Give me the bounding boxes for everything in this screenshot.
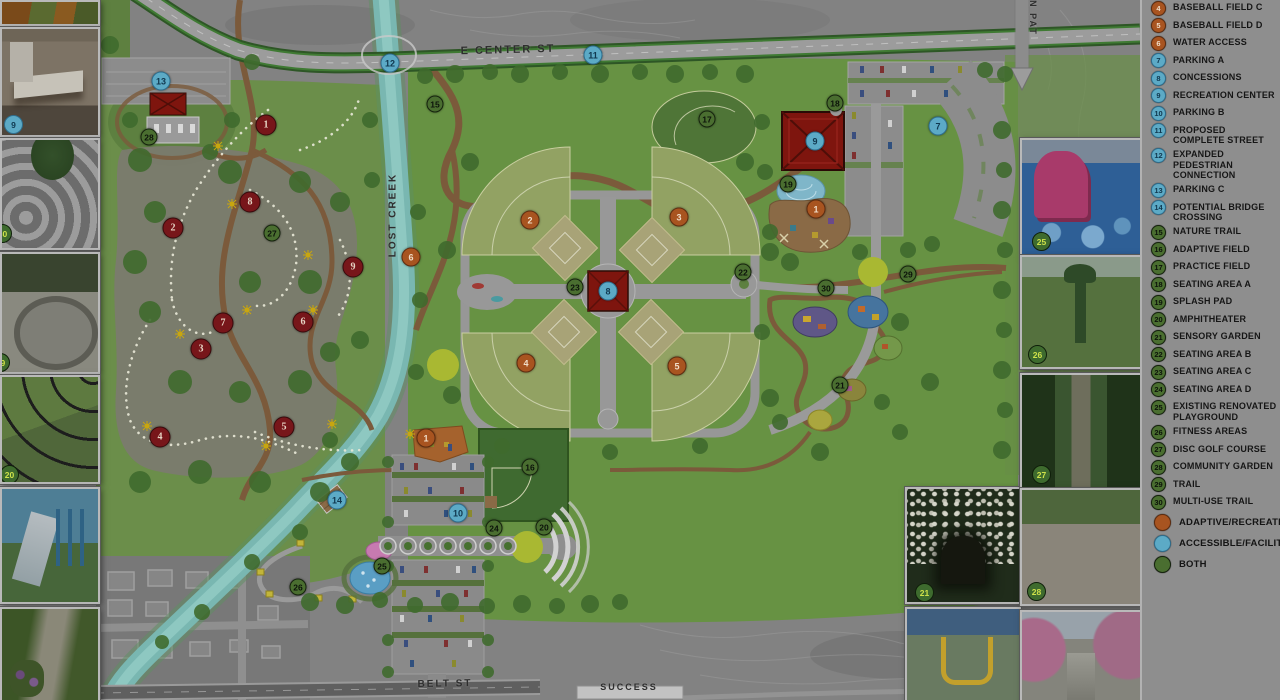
- legend-item-number: 10: [1151, 106, 1166, 121]
- disc-golf-hole-marker-7: 7: [213, 313, 234, 334]
- park-master-plan: E CENTER STLOST CREEKN PATBELT STSUCCESS…: [0, 0, 1280, 700]
- photo-adaptive-swing: [905, 607, 1021, 700]
- legend-item-label: PARKING B: [1173, 106, 1225, 118]
- map-marker-1: 1: [417, 429, 436, 448]
- legend-item-label: ADAPTIVE FIELD: [1173, 242, 1250, 254]
- map-marker-22: 22: [735, 264, 752, 281]
- legend-item-number: 11: [1151, 123, 1166, 138]
- legend-item-number: 16: [1151, 242, 1166, 257]
- legend-item-number: 8: [1151, 71, 1166, 86]
- photo-badge-28: 28: [1027, 582, 1046, 601]
- map-marker-29: 29: [900, 266, 917, 283]
- legend-item-label: SENSORY GARDEN: [1173, 330, 1261, 342]
- legend-item-19: 19SPLASH PAD: [1151, 295, 1278, 310]
- map-marker-17: 17: [699, 111, 716, 128]
- map-marker-10: 10: [449, 504, 468, 523]
- photo-badge-27: 27: [1032, 465, 1051, 484]
- legend-key-label: ACCESSIBLE/FACILITY: [1179, 538, 1280, 549]
- legend-item-label: PARKING A: [1173, 53, 1224, 65]
- legend-item-label: POTENTIAL BRIDGE CROSSING: [1173, 200, 1278, 222]
- legend-item-number: 27: [1151, 442, 1166, 457]
- photo-splash-fountain: 19: [0, 252, 100, 374]
- legend-key-label: BOTH: [1179, 559, 1207, 570]
- map-marker-26: 26: [290, 579, 307, 596]
- legend-item-label: DISC GOLF COURSE: [1173, 442, 1266, 454]
- legend-item-21: 21SENSORY GARDEN: [1151, 330, 1278, 345]
- photo-badge-9: 9: [4, 115, 23, 134]
- legend-item-28: 28COMMUNITY GARDEN: [1151, 460, 1278, 475]
- map-marker-2: 2: [521, 211, 540, 230]
- legend-item-label: SEATING AREA B: [1173, 347, 1251, 359]
- legend-list: 3BASEBALL FIELD B4BASEBALL FIELD C5BASEB…: [1151, 0, 1278, 512]
- legend-item-label: RECREATION CENTER: [1173, 88, 1275, 100]
- disc-golf-hole-marker-2: 2: [163, 218, 184, 239]
- legend-key-green: BOTH: [1154, 556, 1278, 573]
- photo-community-garden: 28: [1020, 488, 1142, 606]
- map-marker-24: 24: [486, 520, 503, 537]
- photo-badge-21: 21: [915, 583, 934, 602]
- legend-key-blue: ACCESSIBLE/FACILITY: [1154, 535, 1278, 552]
- legend-item-number: 5: [1151, 18, 1166, 33]
- legend-panel: 3BASEBALL FIELD B4BASEBALL FIELD C5BASEB…: [1140, 0, 1280, 700]
- map-marker-14: 14: [328, 491, 347, 510]
- legend-item-11: 11PROPOSED COMPLETE STREET: [1151, 123, 1278, 145]
- legend-item-label: SEATING AREA C: [1173, 365, 1251, 377]
- legend-item-label: EXISTING RENOVATED PLAYGROUND: [1173, 400, 1278, 422]
- legend-item-22: 22SEATING AREA B: [1151, 347, 1278, 362]
- street-label-success: SUCCESS: [600, 682, 658, 692]
- legend-item-number: 18: [1151, 277, 1166, 292]
- map-marker-3: 3: [670, 208, 689, 227]
- legend-item-26: 26FITNESS AREAS: [1151, 425, 1278, 440]
- legend-item-number: 21: [1151, 330, 1166, 345]
- legend-item-15: 15NATURE TRAIL: [1151, 225, 1278, 240]
- legend-item-number: 23: [1151, 365, 1166, 380]
- legend-item-number: 4: [1151, 1, 1166, 16]
- legend-item-number: 26: [1151, 425, 1166, 440]
- legend-item-number: 15: [1151, 225, 1166, 240]
- green-key-dot: [1154, 556, 1171, 573]
- legend-item-number: 14: [1151, 200, 1166, 215]
- photo-garden-path: [0, 607, 100, 700]
- photo-badge-26: 26: [1028, 345, 1047, 364]
- legend-item-label: BASEBALL FIELD D: [1173, 18, 1263, 30]
- map-marker-1: 1: [807, 200, 826, 219]
- legend-item-number: 13: [1151, 183, 1166, 198]
- map-marker-5: 5: [668, 357, 687, 376]
- legend-item-label: SEATING AREA D: [1173, 382, 1251, 394]
- legend-item-label: WATER ACCESS: [1173, 36, 1247, 48]
- legend-item-number: 30: [1151, 495, 1166, 510]
- street-label-belt-st: BELT ST: [417, 678, 472, 690]
- legend-item-6: 6WATER ACCESS: [1151, 36, 1278, 51]
- legend-item-label: NATURE TRAIL: [1173, 225, 1241, 237]
- street-label-e-center-st: E CENTER ST: [460, 43, 555, 57]
- legend-item-number: 20: [1151, 312, 1166, 327]
- street-label-n-pat: N PAT: [1028, 0, 1038, 36]
- legend-item-number: 28: [1151, 460, 1166, 475]
- legend-item-label: EXPANDED PEDESTRIAN CONNECTION: [1173, 148, 1278, 181]
- legend-item-29: 29TRAIL: [1151, 477, 1278, 492]
- legend-key-orange: ADAPTIVE/RECREATIONAL: [1154, 514, 1278, 531]
- legend-item-label: BASEBALL FIELD C: [1173, 1, 1263, 13]
- map-marker-28: 28: [141, 129, 158, 146]
- legend-item-7: 7PARKING A: [1151, 53, 1278, 68]
- map-marker-11: 11: [584, 46, 603, 65]
- legend-item-14: 14POTENTIAL BRIDGE CROSSING: [1151, 200, 1278, 222]
- legend-item-5: 5BASEBALL FIELD D: [1151, 18, 1278, 33]
- map-marker-9: 9: [806, 132, 825, 151]
- street-label-lost-creek: LOST CREEK: [388, 173, 399, 257]
- photo-playground-closeup: [0, 0, 100, 26]
- legend-item-number: 9: [1151, 88, 1166, 103]
- legend-item-label: CONCESSIONS: [1173, 71, 1242, 83]
- legend-item-number: 19: [1151, 295, 1166, 310]
- legend-item-number: 6: [1151, 36, 1166, 51]
- map-marker-12: 12: [381, 54, 400, 73]
- legend-item-4: 4BASEBALL FIELD C: [1151, 1, 1278, 16]
- legend-item-10: 10PARKING B: [1151, 106, 1278, 121]
- photo-disc-golf: 27: [1020, 373, 1142, 489]
- legend-item-23: 23SEATING AREA C: [1151, 365, 1278, 380]
- legend-item-24: 24SEATING AREA D: [1151, 382, 1278, 397]
- legend-item-20: 20AMPHITHEATER: [1151, 312, 1278, 327]
- photo-sensory-garden-arbor: 21: [905, 487, 1021, 604]
- legend-item-label: SEATING AREA A: [1173, 277, 1251, 289]
- photo-badge-30: 30: [0, 224, 12, 243]
- legend-item-label: SPLASH PAD: [1173, 295, 1232, 307]
- legend-item-30: 30MULTI-USE TRAIL: [1151, 495, 1278, 510]
- photo-playground-slide: [0, 487, 100, 604]
- map-marker-19: 19: [780, 176, 797, 193]
- photo-badge-25: 25: [1032, 232, 1051, 251]
- disc-golf-hole-marker-5: 5: [274, 417, 295, 438]
- map-marker-23: 23: [567, 279, 584, 296]
- legend-item-16: 16ADAPTIVE FIELD: [1151, 242, 1278, 257]
- legend-key-label: ADAPTIVE/RECREATIONAL: [1179, 517, 1280, 528]
- legend-item-8: 8CONCESSIONS: [1151, 71, 1278, 86]
- legend-item-13: 13PARKING C: [1151, 183, 1278, 198]
- map-marker-25: 25: [374, 558, 391, 575]
- legend-item-number: 12: [1151, 148, 1166, 163]
- disc-golf-hole-marker-9: 9: [343, 257, 364, 278]
- map-marker-16: 16: [522, 459, 539, 476]
- legend-item-number: 25: [1151, 400, 1166, 415]
- disc-golf-hole-marker-3: 3: [191, 339, 212, 360]
- map-marker-30: 30: [818, 280, 835, 297]
- legend-item-label: PROPOSED COMPLETE STREET: [1173, 123, 1278, 145]
- disc-golf-hole-marker-1: 1: [256, 115, 277, 136]
- blue-key-dot: [1154, 535, 1171, 552]
- map-marker-6: 6: [402, 248, 421, 267]
- photo-amphitheater: 20: [0, 375, 100, 484]
- legend-item-27: 27DISC GOLF COURSE: [1151, 442, 1278, 457]
- disc-golf-hole-marker-4: 4: [150, 427, 171, 448]
- orange-key-dot: [1154, 514, 1171, 531]
- legend-item-label: TRAIL: [1173, 477, 1201, 489]
- legend-item-17: 17PRACTICE FIELD: [1151, 260, 1278, 275]
- legend-item-label: FITNESS AREAS: [1173, 425, 1247, 437]
- legend-color-key: ADAPTIVE/RECREATIONALACCESSIBLE/FACILITY…: [1154, 514, 1278, 577]
- legend-item-label: PRACTICE FIELD: [1173, 260, 1250, 272]
- map-marker-18: 18: [827, 95, 844, 112]
- photo-fitness-areas: 26: [1020, 255, 1142, 369]
- map-marker-13: 13: [152, 72, 171, 91]
- legend-item-12: 12EXPANDED PEDESTRIAN CONNECTION: [1151, 148, 1278, 181]
- photo-curved-walkway: 30: [0, 138, 100, 250]
- legend-item-25: 25EXISTING RENOVATED PLAYGROUND: [1151, 400, 1278, 422]
- legend-item-label: COMMUNITY GARDEN: [1173, 460, 1273, 472]
- map-marker-21: 21: [832, 377, 849, 394]
- disc-golf-hole-marker-6: 6: [293, 312, 314, 333]
- map-marker-7: 7: [929, 117, 948, 136]
- legend-item-9: 9RECREATION CENTER: [1151, 88, 1278, 103]
- legend-item-label: AMPHITHEATER: [1173, 312, 1246, 324]
- photo-badge-19: 19: [0, 353, 10, 372]
- legend-item-label: MULTI-USE TRAIL: [1173, 495, 1253, 507]
- map-marker-20: 20: [536, 519, 553, 536]
- photo-adult-changing-room: 9: [0, 27, 100, 137]
- photo-renovated-playground: 25: [1020, 138, 1142, 256]
- photo-badge-20: 20: [0, 465, 19, 484]
- map-marker-27: 27: [264, 225, 281, 242]
- map-marker-8: 8: [599, 282, 618, 301]
- legend-item-label: PARKING C: [1173, 183, 1225, 195]
- disc-golf-hole-marker-8: 8: [240, 192, 261, 213]
- legend-item-number: 17: [1151, 260, 1166, 275]
- map-marker-4: 4: [517, 354, 536, 373]
- legend-item-number: 29: [1151, 477, 1166, 492]
- photo-blossom-trail: [1020, 610, 1142, 700]
- legend-item-number: 7: [1151, 53, 1166, 68]
- legend-item-18: 18SEATING AREA A: [1151, 277, 1278, 292]
- legend-item-number: 24: [1151, 382, 1166, 397]
- legend-item-number: 22: [1151, 347, 1166, 362]
- map-marker-15: 15: [427, 96, 444, 113]
